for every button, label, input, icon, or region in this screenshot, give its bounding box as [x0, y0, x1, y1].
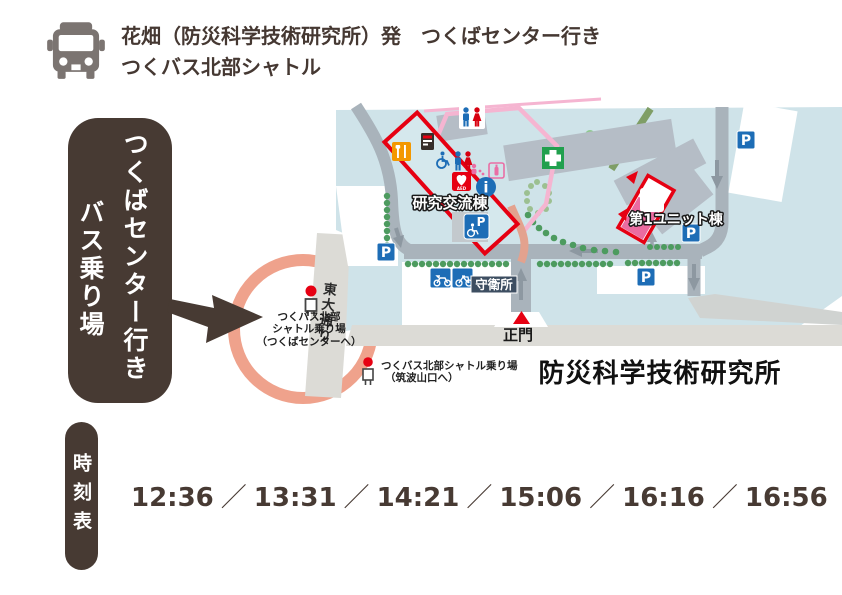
svg-text:守衛所: 守衛所 [475, 277, 513, 292]
page-title-line1: 花畑（防災科学技術研究所）発 つくばセンター行き [121, 21, 601, 52]
svg-text:P: P [686, 226, 696, 242]
facility-map: AED i P P P P P [165, 85, 842, 405]
aed-icon: AED [452, 172, 471, 191]
callout-arrow [167, 295, 263, 343]
svg-text:AED: AED [457, 186, 467, 191]
time-value: 12:36 [131, 483, 214, 513]
boarding-point-callout: つくばセンター行き バス乗り場 [68, 118, 172, 403]
timetable-times: 12:36／13:31／14:21／15:06／16:16／16:56 [131, 477, 828, 514]
parking-icon-northeast: P [737, 131, 755, 149]
svg-text:つくバス北部: つくバス北部 [278, 310, 341, 323]
svg-text:P: P [741, 133, 751, 149]
time-value: 15:06 [499, 483, 582, 513]
time-value: 16:56 [745, 483, 828, 513]
bus-stop-tsukubasan-label: つくバス北部シャトル乗り場 （筑波山口へ） [381, 359, 518, 384]
guard-office: 守衛所 [471, 276, 517, 293]
svg-text:（筑波山口へ）: （筑波山口へ） [385, 371, 459, 384]
front-road [346, 325, 842, 346]
building-unit1-label: 第1ユニット棟 [629, 211, 724, 228]
bicycle-parking-icon [452, 268, 473, 288]
motorcycle-parking-icon [430, 268, 451, 288]
first-aid-icon [542, 147, 564, 169]
page-title: 花畑（防災科学技術研究所）発 つくばセンター行き つくバス北部シャトル [121, 21, 601, 83]
time-separator: ／ [214, 483, 254, 513]
time-separator: ／ [337, 483, 377, 513]
svg-text:P: P [381, 245, 391, 261]
accessible-parking-icon: P [452, 212, 489, 242]
svg-text:シャトル乗り場: シャトル乗り場 [272, 322, 346, 335]
boarding-line2: バス乗り場 [68, 199, 112, 403]
main-gate-label: 正門 [503, 326, 533, 344]
parking-icon-west: P [377, 243, 395, 261]
restaurant-icon [392, 142, 411, 161]
bus-icon [46, 20, 106, 80]
svg-text:P: P [641, 270, 651, 286]
time-separator: ／ [705, 483, 745, 513]
svg-text:（つくばセンターへ）: （つくばセンターへ） [257, 335, 362, 348]
bus-stop-tsukubasan-icon [363, 357, 373, 385]
vending-machine-icon [421, 133, 434, 150]
boarding-line1: つくばセンター行き [112, 131, 156, 403]
parking-icon-south: P [637, 268, 655, 286]
facility-name: 防災科学技術研究所 [538, 358, 781, 389]
boarding-point-vertical-text: つくばセンター行き バス乗り場 [68, 118, 162, 403]
svg-text:P: P [477, 215, 486, 229]
time-value: 16:16 [622, 483, 705, 513]
time-separator: ／ [582, 483, 622, 513]
page-header: 花畑（防災科学技術研究所）発 つくばセンター行き つくバス北部シャトル [0, 0, 842, 90]
time-value: 14:21 [377, 483, 460, 513]
svg-text:つくバス北部シャトル乗り場: つくバス北部シャトル乗り場 [381, 359, 518, 372]
timetable-pill: 時刻表 [65, 422, 98, 570]
building-koryu-label: 研究交流棟 [412, 194, 488, 212]
timetable-label: 時刻表 [68, 453, 95, 540]
page-title-line2: つくバス北部シャトル [121, 52, 601, 83]
toilet-icon-north [459, 104, 485, 129]
time-separator: ／ [459, 483, 499, 513]
time-value: 13:31 [254, 483, 337, 513]
